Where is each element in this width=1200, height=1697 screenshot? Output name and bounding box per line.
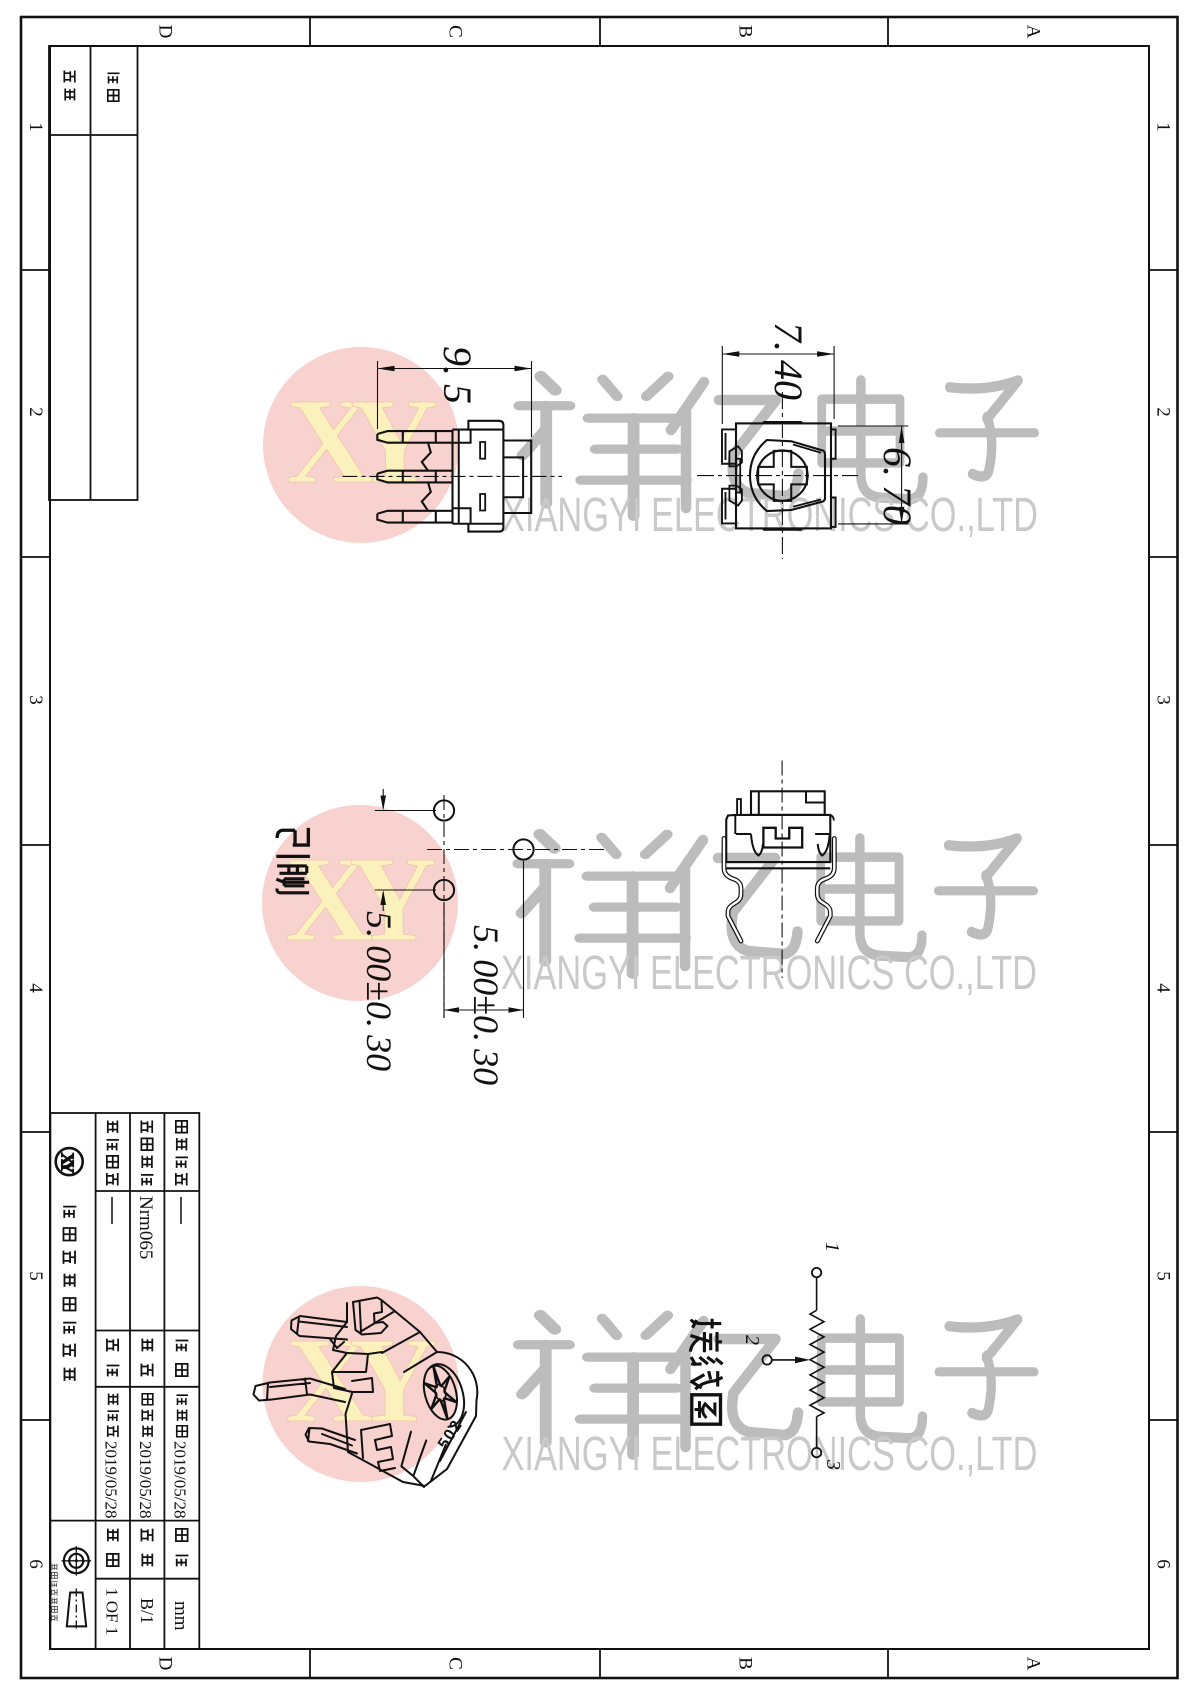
- svg-text:B/1: B/1: [137, 1598, 157, 1624]
- svg-text:2: 2: [25, 407, 46, 417]
- svg-text:1 OF 1: 1 OF 1: [103, 1588, 122, 1635]
- svg-text:mm: mm: [170, 1601, 191, 1631]
- svg-text:Nrm065: Nrm065: [135, 1196, 156, 1259]
- svg-text:C: C: [445, 1657, 466, 1670]
- svg-text:2019/05/28: 2019/05/28: [102, 1441, 121, 1518]
- svg-text:7. 40: 7. 40: [766, 322, 811, 400]
- svg-text:5: 5: [1153, 1271, 1174, 1281]
- svg-text:3: 3: [1153, 695, 1174, 705]
- svg-text:6: 6: [25, 1559, 46, 1569]
- svg-text:B: B: [735, 25, 756, 38]
- svg-text:1: 1: [25, 122, 46, 132]
- svg-text:3: 3: [25, 695, 46, 705]
- svg-text:A: A: [1023, 1657, 1044, 1671]
- svg-text:1: 1: [821, 1242, 843, 1252]
- svg-text:4: 4: [25, 983, 46, 993]
- svg-text:6: 6: [1153, 1559, 1174, 1569]
- svg-text:2: 2: [741, 1335, 763, 1345]
- svg-text:2: 2: [1153, 407, 1174, 417]
- svg-text:A: A: [1023, 25, 1044, 39]
- svg-text:5. 00±0. 30: 5. 00±0. 30: [359, 911, 399, 1071]
- svg-text:2019/05/28: 2019/05/28: [136, 1441, 155, 1518]
- svg-text:D: D: [155, 25, 176, 39]
- svg-text:3: 3: [822, 1459, 844, 1470]
- svg-text:2019/05/28: 2019/05/28: [171, 1441, 190, 1518]
- svg-text:1: 1: [1153, 122, 1174, 132]
- svg-text:5: 5: [25, 1271, 46, 1281]
- svg-text:6. 70: 6. 70: [875, 447, 920, 525]
- svg-text:4: 4: [1153, 983, 1174, 993]
- svg-text:D: D: [155, 1657, 176, 1671]
- svg-text:C: C: [445, 25, 466, 38]
- svg-text:5. 00±0. 30: 5. 00±0. 30: [466, 925, 506, 1085]
- svg-text:9. 5: 9. 5: [435, 346, 480, 404]
- svg-text:B: B: [735, 1657, 756, 1670]
